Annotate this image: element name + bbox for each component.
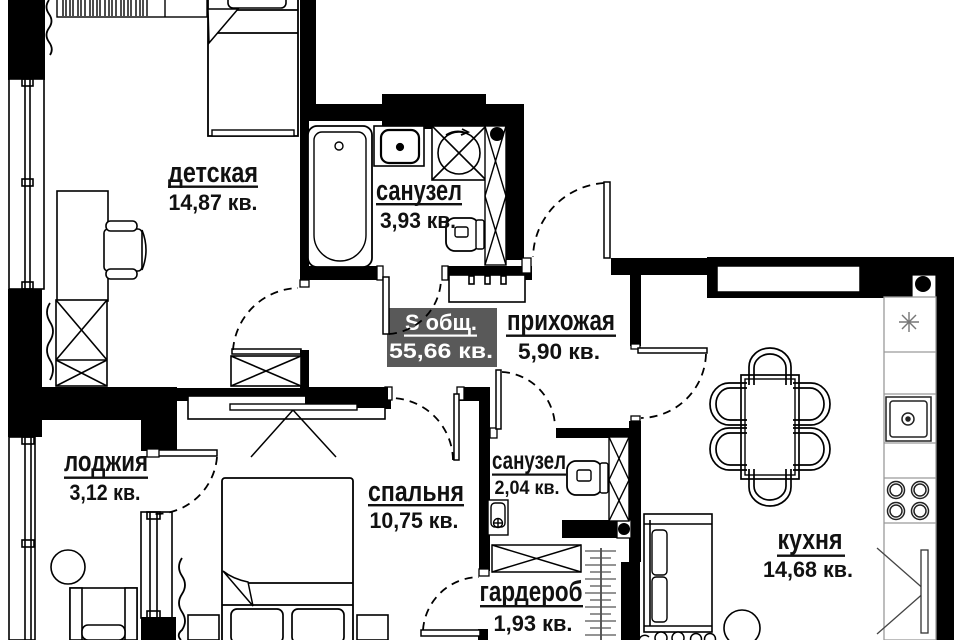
svg-text:14,87 кв.: 14,87 кв. bbox=[169, 190, 258, 215]
svg-text:гардероб: гардероб bbox=[480, 576, 583, 608]
svg-text:14,68 кв.: 14,68 кв. bbox=[763, 557, 853, 582]
svg-text:санузел: санузел bbox=[492, 447, 566, 475]
svg-text:2,04 кв.: 2,04 кв. bbox=[495, 478, 560, 499]
svg-text:1,93 кв.: 1,93 кв. bbox=[494, 611, 573, 636]
svg-text:10,75 кв.: 10,75 кв. bbox=[370, 508, 459, 533]
svg-text:кухня: кухня bbox=[778, 524, 843, 556]
svg-text:S общ.: S общ. bbox=[405, 311, 477, 336]
svg-text:3,12 кв.: 3,12 кв. bbox=[70, 480, 141, 505]
svg-text:лоджия: лоджия bbox=[64, 446, 148, 478]
svg-text:спальня: спальня bbox=[368, 476, 464, 508]
svg-text:детская: детская bbox=[168, 157, 258, 189]
svg-text:санузел: санузел bbox=[376, 175, 462, 207]
svg-text:3,93 кв.: 3,93 кв. bbox=[380, 208, 456, 233]
svg-text:5,90 кв.: 5,90 кв. bbox=[518, 339, 600, 364]
svg-text:55,66 кв.: 55,66 кв. bbox=[389, 340, 493, 363]
svg-text:прихожая: прихожая bbox=[507, 305, 615, 337]
